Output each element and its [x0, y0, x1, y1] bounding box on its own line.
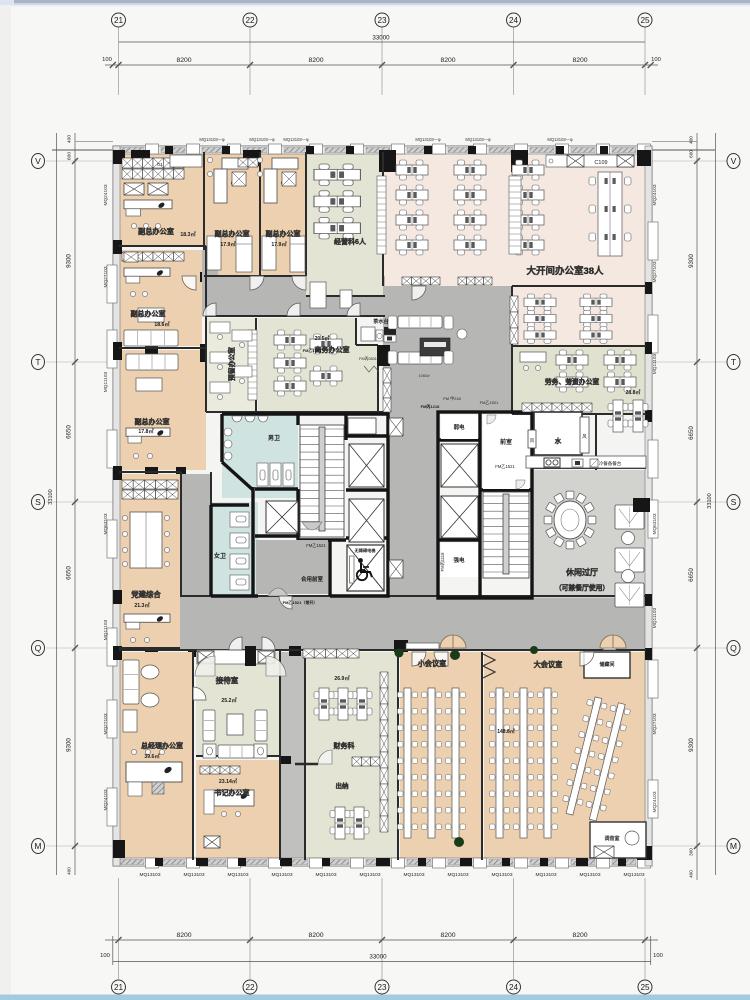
svg-text:副总办公室: 副总办公室	[215, 229, 250, 238]
svg-text:副总办公室: 副总办公室	[138, 227, 174, 236]
svg-text:MQ13103—φ: MQ13103—φ	[465, 137, 491, 142]
svg-text:28.8㎡: 28.8㎡	[626, 389, 641, 396]
svg-text:MQ13103: MQ13103	[623, 872, 644, 878]
svg-text:MQ13103: MQ13103	[139, 872, 160, 878]
svg-text:1060#: 1060#	[418, 373, 430, 378]
svg-text:18.3㎡: 18.3㎡	[180, 230, 196, 238]
svg-text:MQ13103—φ: MQ13103—φ	[199, 137, 225, 142]
svg-text:22: 22	[245, 16, 255, 25]
svg-text:前室: 前室	[500, 438, 512, 446]
svg-text:MQ24103: MQ24103	[103, 789, 109, 810]
svg-text:MQ13103: MQ13103	[535, 872, 556, 878]
svg-text:600: 600	[689, 150, 694, 158]
svg-text:MQ13103—φ: MQ13103—φ	[547, 137, 573, 142]
svg-text:20.5㎡: 20.5㎡	[315, 335, 330, 342]
svg-text:劳务、劳资办公室: 劳务、劳资办公室	[545, 377, 600, 386]
svg-text:党建综合: 党建综合	[131, 590, 161, 599]
svg-text:9300: 9300	[688, 738, 695, 752]
svg-text:100: 100	[651, 57, 661, 63]
svg-text:财务科: 财务科	[333, 741, 355, 750]
svg-text:S: S	[35, 497, 41, 507]
svg-text:17.9㎡: 17.9㎡	[220, 240, 236, 248]
svg-text:V: V	[35, 156, 41, 166]
svg-text:强电: 强电	[453, 556, 465, 564]
svg-text:300: 300	[689, 848, 694, 856]
svg-text:弱电: 弱电	[453, 423, 465, 431]
svg-text:FM乙1521: FM乙1521	[495, 463, 515, 469]
svg-text:休闲过厅: 休闲过厅	[565, 567, 598, 577]
svg-text:33100: 33100	[48, 489, 54, 505]
svg-text:C1: C1	[157, 162, 163, 167]
svg-text:S: S	[731, 497, 737, 507]
svg-text:FM乙1521: FM乙1521	[303, 347, 322, 353]
svg-text:MQ11103: MQ11103	[103, 371, 109, 392]
svg-text:Q: Q	[35, 643, 42, 653]
svg-text:女卫: 女卫	[214, 552, 226, 560]
svg-text:25: 25	[640, 983, 650, 992]
svg-text:148.8㎡: 148.8㎡	[497, 728, 515, 735]
svg-text:100: 100	[100, 953, 110, 959]
svg-text:9300: 9300	[66, 738, 73, 752]
svg-text:MQ13103: MQ13103	[491, 872, 512, 878]
svg-text:33000: 33000	[372, 35, 390, 42]
svg-text:MQ27103: MQ27103	[652, 261, 658, 282]
svg-text:400: 400	[689, 136, 694, 144]
svg-text:6650: 6650	[66, 566, 73, 580]
svg-text:600: 600	[67, 152, 73, 160]
svg-text:8200: 8200	[572, 57, 587, 64]
svg-text:MQ13103: MQ13103	[271, 872, 292, 878]
svg-text:小会议室: 小会议室	[417, 659, 447, 668]
svg-text:MQ13103—φ: MQ13103—φ	[415, 137, 441, 142]
svg-text:M: M	[730, 841, 737, 851]
svg-text:21: 21	[114, 16, 124, 25]
svg-text:调音室: 调音室	[604, 835, 619, 842]
svg-text:储藏间: 储藏间	[599, 661, 614, 668]
svg-text:大开间办公室38人: 大开间办公室38人	[526, 265, 604, 277]
svg-text:M: M	[34, 841, 41, 851]
svg-text:MQ27103: MQ27103	[103, 266, 109, 287]
svg-text:MQ24103: MQ24103	[103, 184, 109, 205]
svg-text:MQ13103: MQ13103	[183, 872, 204, 878]
svg-text:V: V	[731, 156, 737, 166]
svg-text:经营科6人: 经营科6人	[334, 237, 367, 246]
svg-text:6650: 6650	[688, 568, 695, 582]
svg-text:33100: 33100	[707, 493, 713, 509]
svg-text:100: 100	[102, 57, 112, 63]
svg-text:MQ11103: MQ11103	[652, 607, 658, 628]
svg-text:男卫: 男卫	[268, 434, 280, 442]
svg-text:400: 400	[689, 870, 694, 878]
svg-text:MQ11103: MQ11103	[103, 619, 109, 640]
svg-text:MQ13103: MQ13103	[403, 872, 424, 878]
svg-text:21: 21	[114, 983, 124, 992]
svg-text:6650: 6650	[66, 425, 73, 439]
svg-text:18.6㎡: 18.6㎡	[154, 320, 170, 328]
svg-text:8200: 8200	[308, 57, 323, 64]
svg-text:预留办公室: 预留办公室	[227, 347, 236, 381]
svg-text:MQ11103: MQ11103	[652, 353, 658, 374]
svg-text:MQ13103: MQ13103	[579, 872, 600, 878]
svg-text:MQ13103—φ: MQ13103—φ	[249, 137, 275, 142]
svg-text:副总办公室: 副总办公室	[266, 229, 301, 238]
svg-text:MQ13103—φ: MQ13103—φ	[283, 137, 309, 142]
svg-text:出纳: 出纳	[336, 781, 350, 790]
svg-text:合用前室: 合用前室	[301, 575, 324, 583]
svg-text:400: 400	[67, 135, 73, 143]
svg-text:MQ13103: MQ13103	[315, 872, 336, 878]
svg-text:副总办公室: 副总办公室	[135, 417, 170, 426]
svg-text:无障碍电梯: 无障碍电梯	[354, 547, 377, 554]
svg-text:冷餐备餐台: 冷餐备餐台	[599, 460, 622, 467]
svg-text:C109: C109	[594, 160, 607, 166]
svg-text:24: 24	[509, 983, 519, 992]
svg-text:26.9㎡: 26.9㎡	[334, 674, 350, 682]
svg-text:39.6㎡: 39.6㎡	[144, 752, 160, 760]
svg-text:8200: 8200	[440, 57, 455, 64]
svg-text:FM丙1218: FM丙1218	[421, 403, 440, 409]
svg-text:T: T	[35, 357, 41, 367]
svg-text:24: 24	[509, 16, 519, 25]
svg-text:9300: 9300	[688, 254, 695, 268]
svg-text:FM乙1521: FM乙1521	[306, 542, 326, 548]
svg-text:MQ63103: MQ63103	[103, 513, 109, 534]
svg-text:茶水台: 茶水台	[372, 317, 389, 325]
svg-text:MQ13103: MQ13103	[227, 872, 248, 878]
svg-text:8200: 8200	[572, 932, 587, 939]
svg-text:25: 25	[640, 16, 650, 25]
svg-text:MQ24103: MQ24103	[652, 791, 658, 812]
svg-text:17.9㎡: 17.9㎡	[271, 240, 287, 248]
svg-text:FM乙1521: FM乙1521	[480, 399, 499, 405]
svg-text:6650: 6650	[688, 426, 695, 440]
svg-text:8200: 8200	[440, 932, 455, 939]
svg-text:大会议室: 大会议室	[534, 660, 563, 669]
svg-text:总经理办公室: 总经理办公室	[141, 741, 183, 750]
svg-text:FM丙0831: FM丙0831	[359, 356, 377, 361]
svg-text:22: 22	[245, 983, 255, 992]
svg-text:MQ27103: MQ27103	[103, 713, 109, 734]
svg-text:T: T	[731, 357, 737, 367]
svg-text:25.2㎡: 25.2㎡	[221, 696, 237, 704]
svg-text:Q: Q	[730, 643, 737, 653]
svg-text:副总办公室: 副总办公室	[131, 309, 166, 318]
svg-text:FM乙1521（常开）: FM乙1521（常开）	[283, 599, 318, 605]
svg-text:MQ63103: MQ63103	[652, 513, 658, 534]
svg-text:接待室: 接待室	[216, 675, 239, 685]
svg-text:8200: 8200	[308, 932, 323, 939]
svg-text:100: 100	[653, 953, 663, 959]
svg-text:33000: 33000	[369, 954, 387, 961]
svg-text:MQ13103: MQ13103	[359, 872, 380, 878]
svg-text:23: 23	[377, 16, 387, 25]
svg-text:（可兼餐厅使用）: （可兼餐厅使用）	[555, 583, 609, 592]
svg-text:FM 甲218: FM 甲218	[443, 396, 461, 401]
svg-text:9300: 9300	[66, 254, 73, 268]
svg-text:书记办公室: 书记办公室	[215, 788, 250, 797]
svg-text:MQ13103: MQ13103	[447, 872, 468, 878]
svg-text:21.3㎡: 21.3㎡	[134, 601, 150, 609]
svg-text:23: 23	[377, 983, 387, 992]
svg-text:MQ24103: MQ24103	[652, 184, 658, 205]
svg-text:8200: 8200	[176, 57, 191, 64]
svg-text:8200: 8200	[176, 932, 191, 939]
svg-text:17.8㎡: 17.8㎡	[138, 427, 154, 435]
svg-text:水: 水	[555, 436, 562, 445]
svg-text:MQ27103: MQ27103	[652, 713, 658, 734]
svg-text:23.14㎡: 23.14㎡	[219, 777, 238, 785]
svg-text:400: 400	[67, 867, 72, 875]
